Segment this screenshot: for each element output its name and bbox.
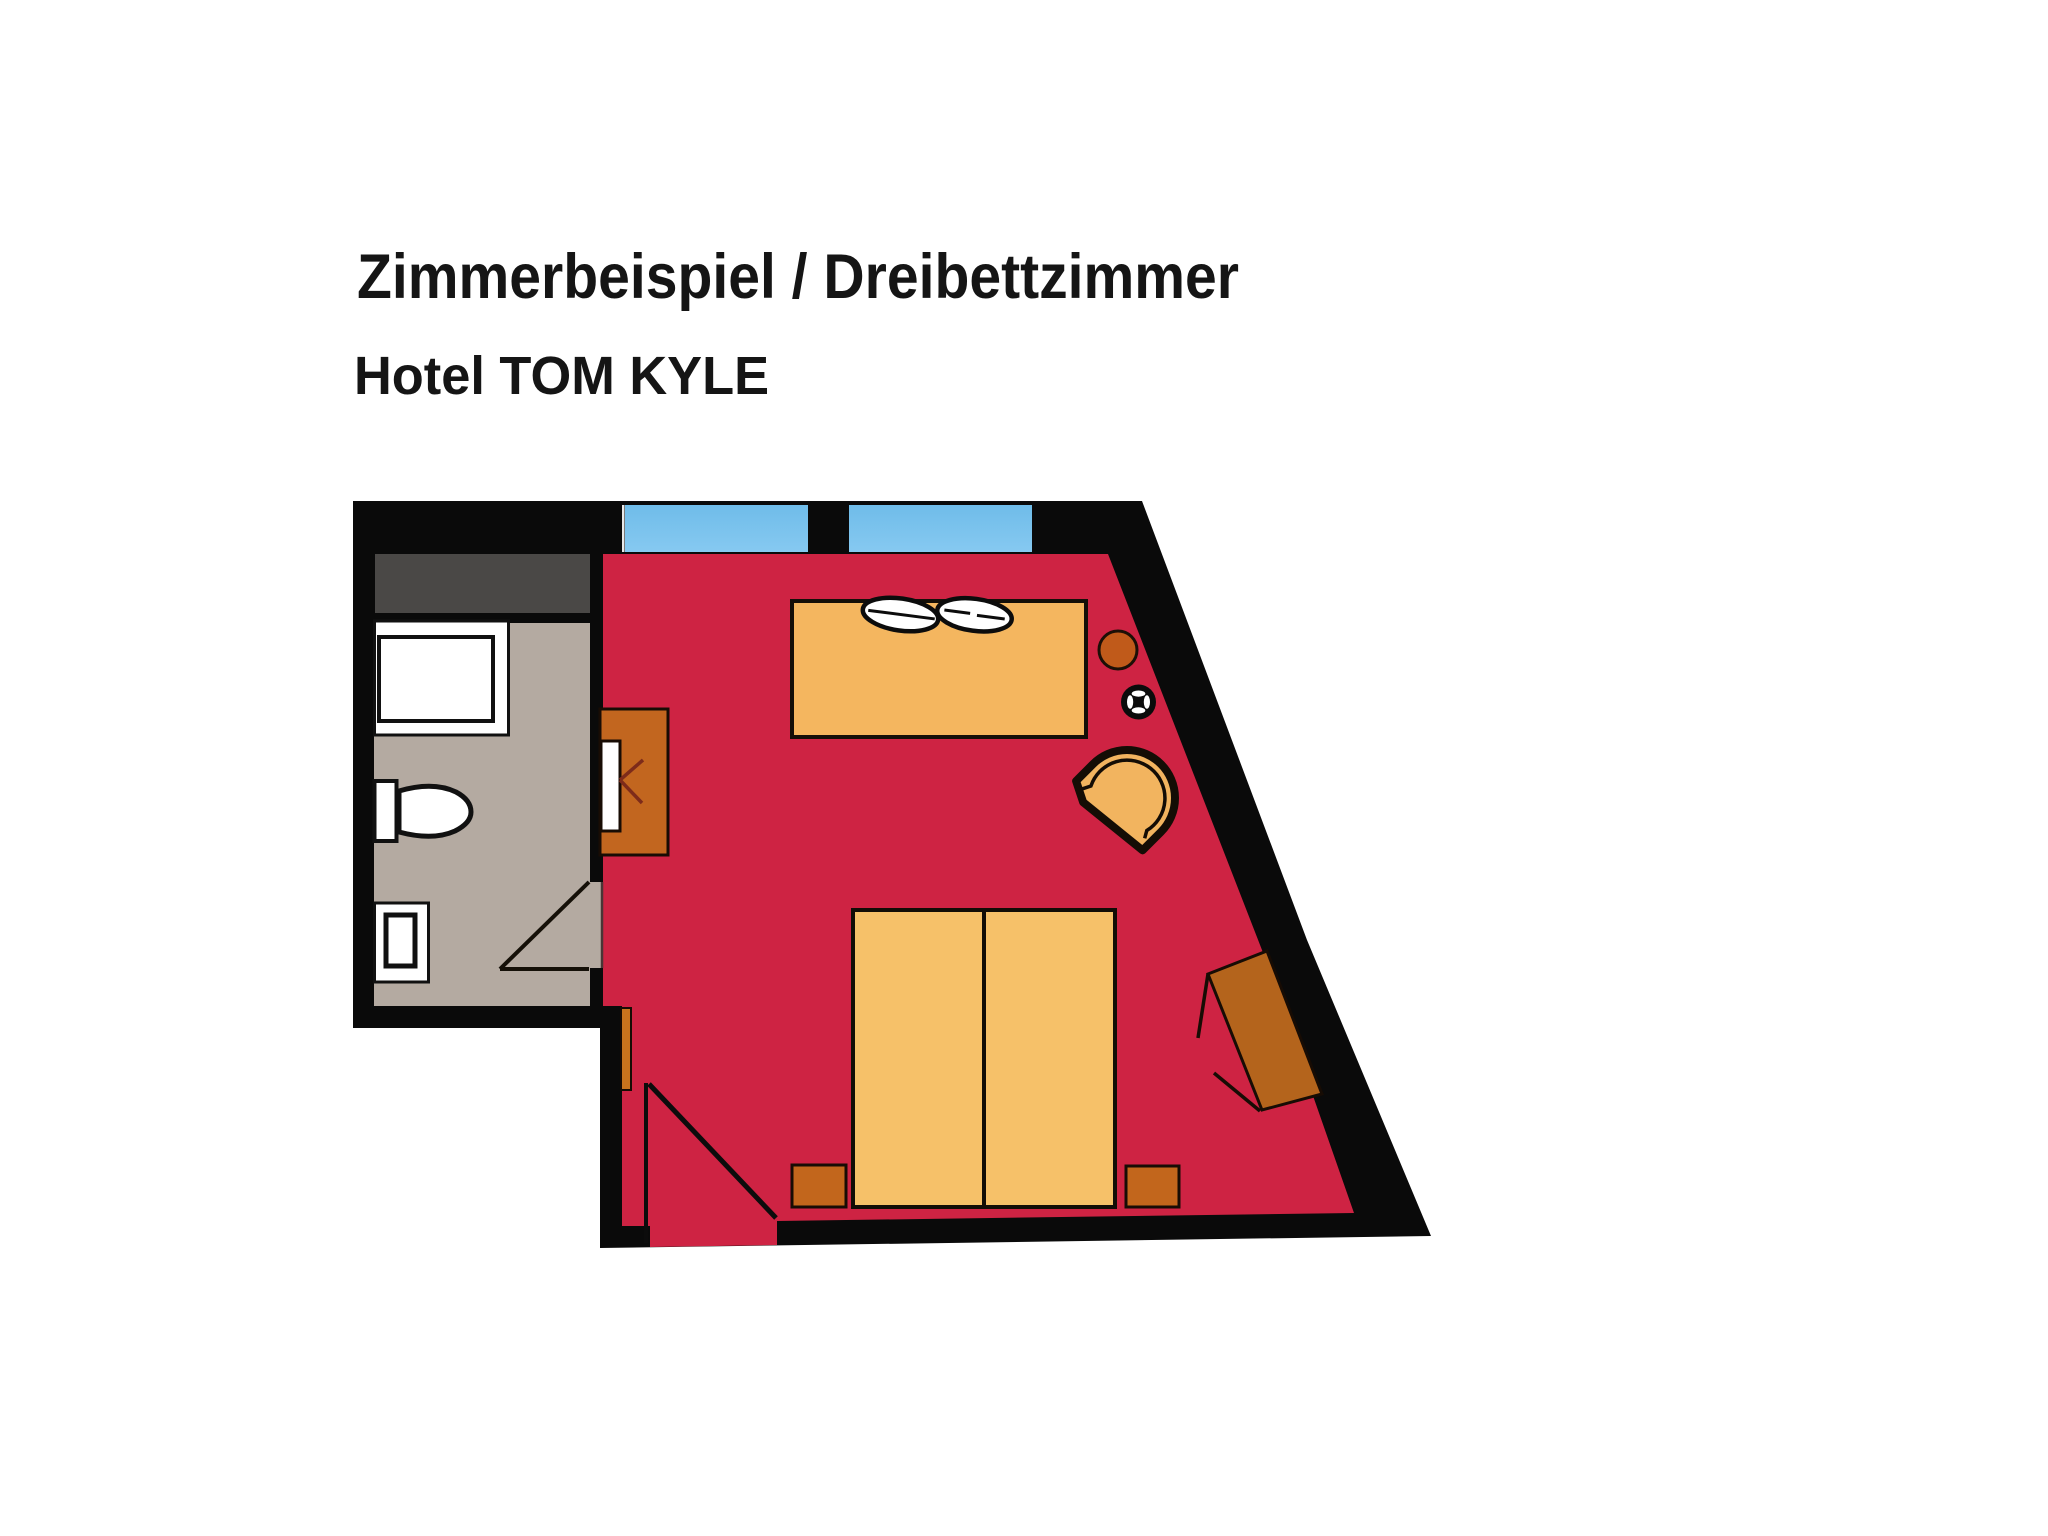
svg-text:Hotel TOM KYLE: Hotel TOM KYLE <box>354 346 769 406</box>
svg-text:Zimmerbeispiel / Dreibettzimme: Zimmerbeispiel / Dreibettzimmer <box>357 242 1239 312</box>
